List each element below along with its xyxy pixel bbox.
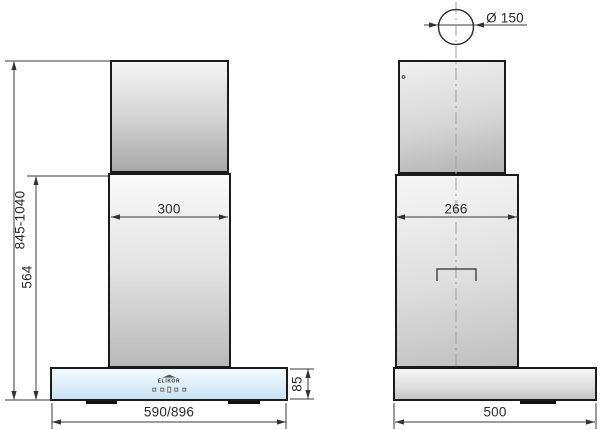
brand-logo: ELIKOR bbox=[158, 380, 181, 385]
control-buttons-row bbox=[152, 387, 186, 393]
front-view-chimney-duct bbox=[110, 60, 229, 173]
side-view-foot bbox=[520, 401, 556, 404]
dim-duct-width: 300 bbox=[157, 202, 180, 216]
front-view-foot-right bbox=[228, 401, 260, 404]
dim-panel-height: 85 bbox=[290, 376, 304, 391]
brand-roof-icon bbox=[162, 375, 176, 378]
control-button-icon bbox=[160, 388, 164, 392]
front-view-glass-panel: ELIKOR bbox=[50, 367, 288, 401]
front-view-foot-left bbox=[86, 401, 117, 404]
dim-overall-width: 590/896 bbox=[144, 405, 194, 419]
dim-flue-diameter: Ø 150 bbox=[486, 11, 524, 25]
dim-body-height: 564 bbox=[20, 265, 34, 288]
side-view-hood-body bbox=[393, 367, 597, 401]
control-button-icon bbox=[182, 388, 186, 392]
dim-overall-height: 845-1040 bbox=[13, 191, 27, 250]
flue-circle bbox=[439, 10, 474, 45]
dim-hood-depth: 500 bbox=[483, 405, 506, 419]
display-icon bbox=[167, 387, 171, 393]
side-view-chimney-duct bbox=[398, 60, 506, 174]
control-button-icon bbox=[174, 388, 178, 392]
control-button-icon bbox=[152, 388, 156, 392]
technical-drawing: ELIKOR bbox=[0, 0, 600, 430]
dim-upper-body-depth: 266 bbox=[444, 202, 467, 216]
control-panel: ELIKOR bbox=[152, 375, 186, 393]
